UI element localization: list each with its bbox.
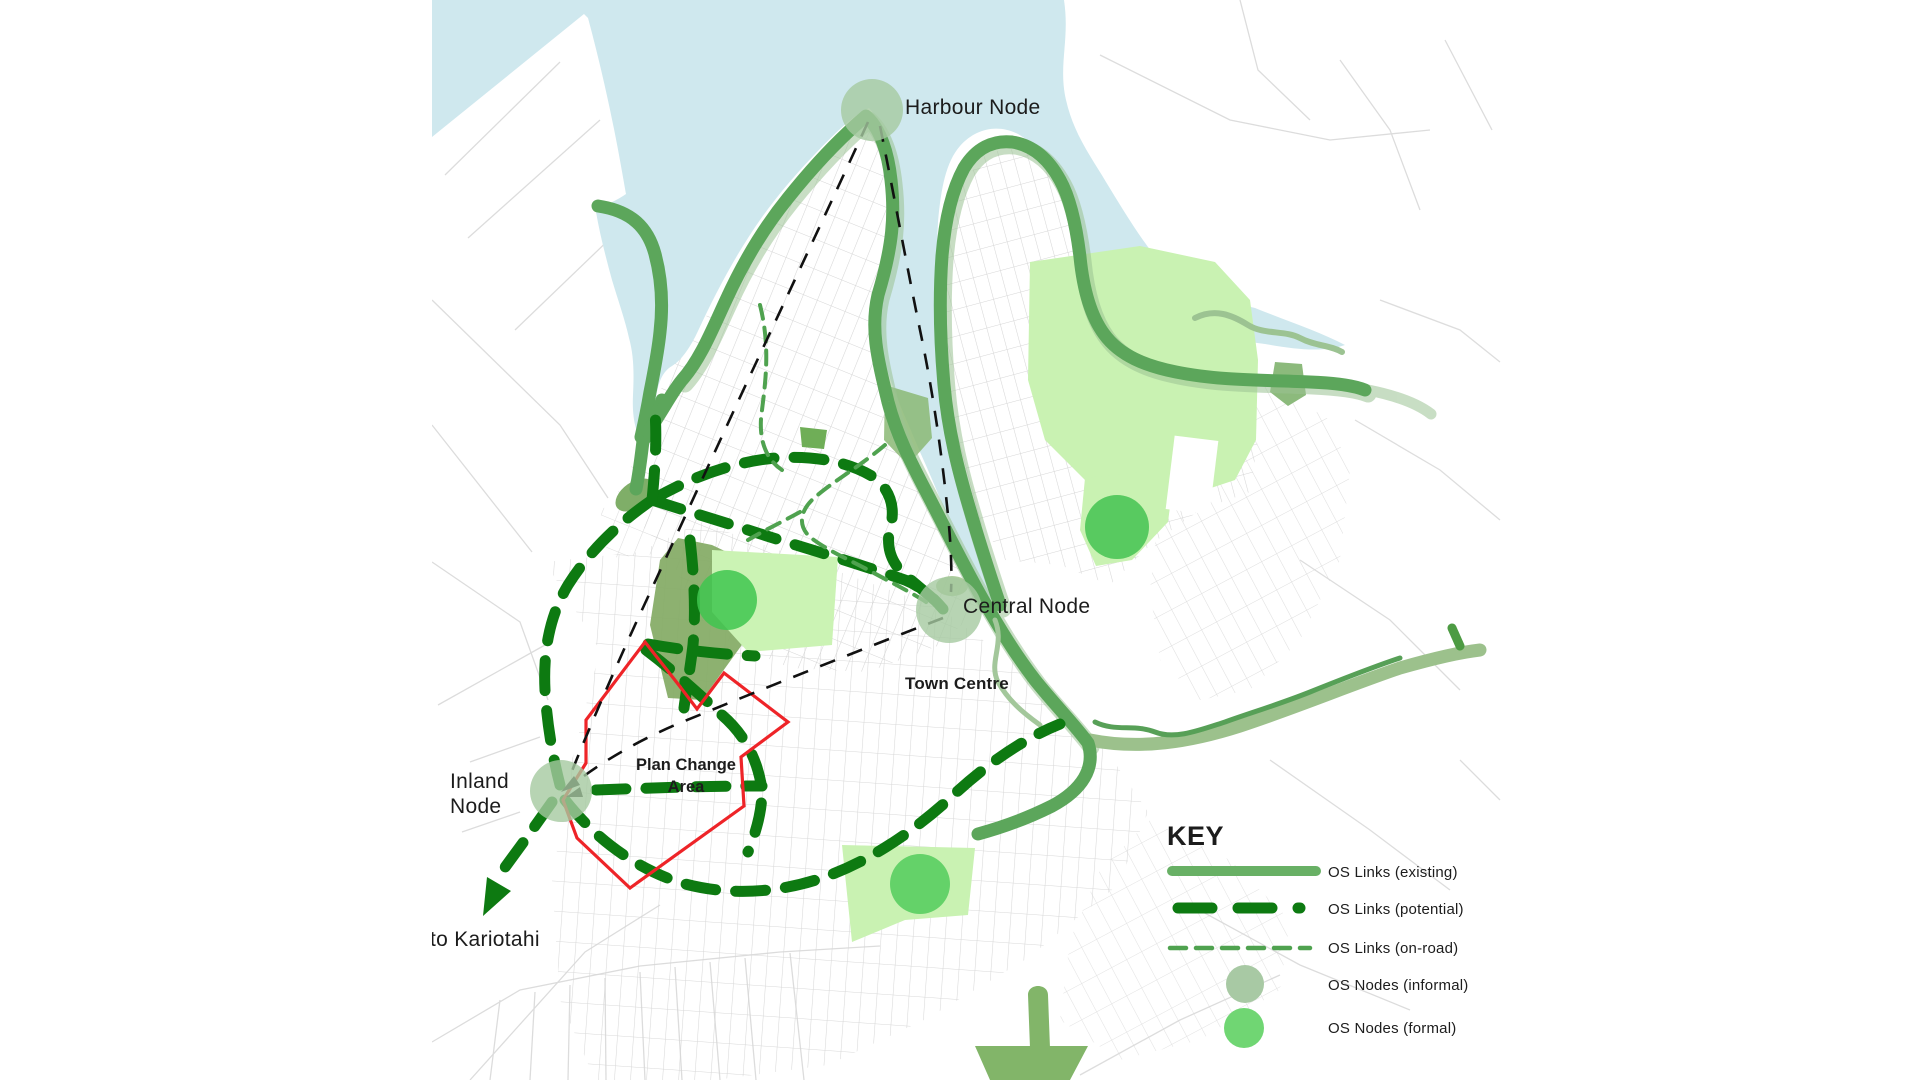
to-kariotahi-label: to Kariotahi (430, 928, 540, 951)
legend-title: KEY (1167, 821, 1224, 851)
legend-swatch-informal-node (1226, 965, 1264, 1003)
legend-label-onroad: OS Links (on-road) (1328, 940, 1458, 957)
harbour-node-circle (841, 79, 903, 141)
right-margin (1510, 0, 1920, 1080)
formal-node-south (890, 854, 950, 914)
legend-label-formal: OS Nodes (formal) (1328, 1020, 1456, 1037)
legend-label-potential: OS Links (potential) (1328, 901, 1464, 918)
formal-node-east (1085, 495, 1149, 559)
harbour-node-label: Harbour Node (905, 96, 1041, 119)
small-park-midtown (800, 427, 827, 449)
legend-swatch-formal-node (1224, 1008, 1264, 1048)
town-centre-label: Town Centre (905, 674, 1009, 693)
park-cutout (1166, 436, 1219, 515)
legend-label-existing: OS Links (existing) (1328, 864, 1458, 881)
formal-node-park (697, 570, 757, 630)
legend-label-informal: OS Nodes (informal) (1328, 977, 1469, 994)
plan-change-label-line2: Area (668, 778, 706, 796)
plan-change-label-line1: Plan Change (636, 756, 736, 774)
inland-node-label-line2: Node (450, 795, 501, 818)
inland-node-circle (530, 760, 592, 822)
central-node-label: Central Node (963, 595, 1090, 618)
inland-node-label-line1: Inland (450, 770, 509, 793)
left-margin (0, 0, 432, 1080)
open-space-network-map-page: Harbour Node Central Node Inland Node To… (0, 0, 1920, 1080)
open-space-network-map: Harbour Node Central Node Inland Node To… (0, 0, 1920, 1080)
